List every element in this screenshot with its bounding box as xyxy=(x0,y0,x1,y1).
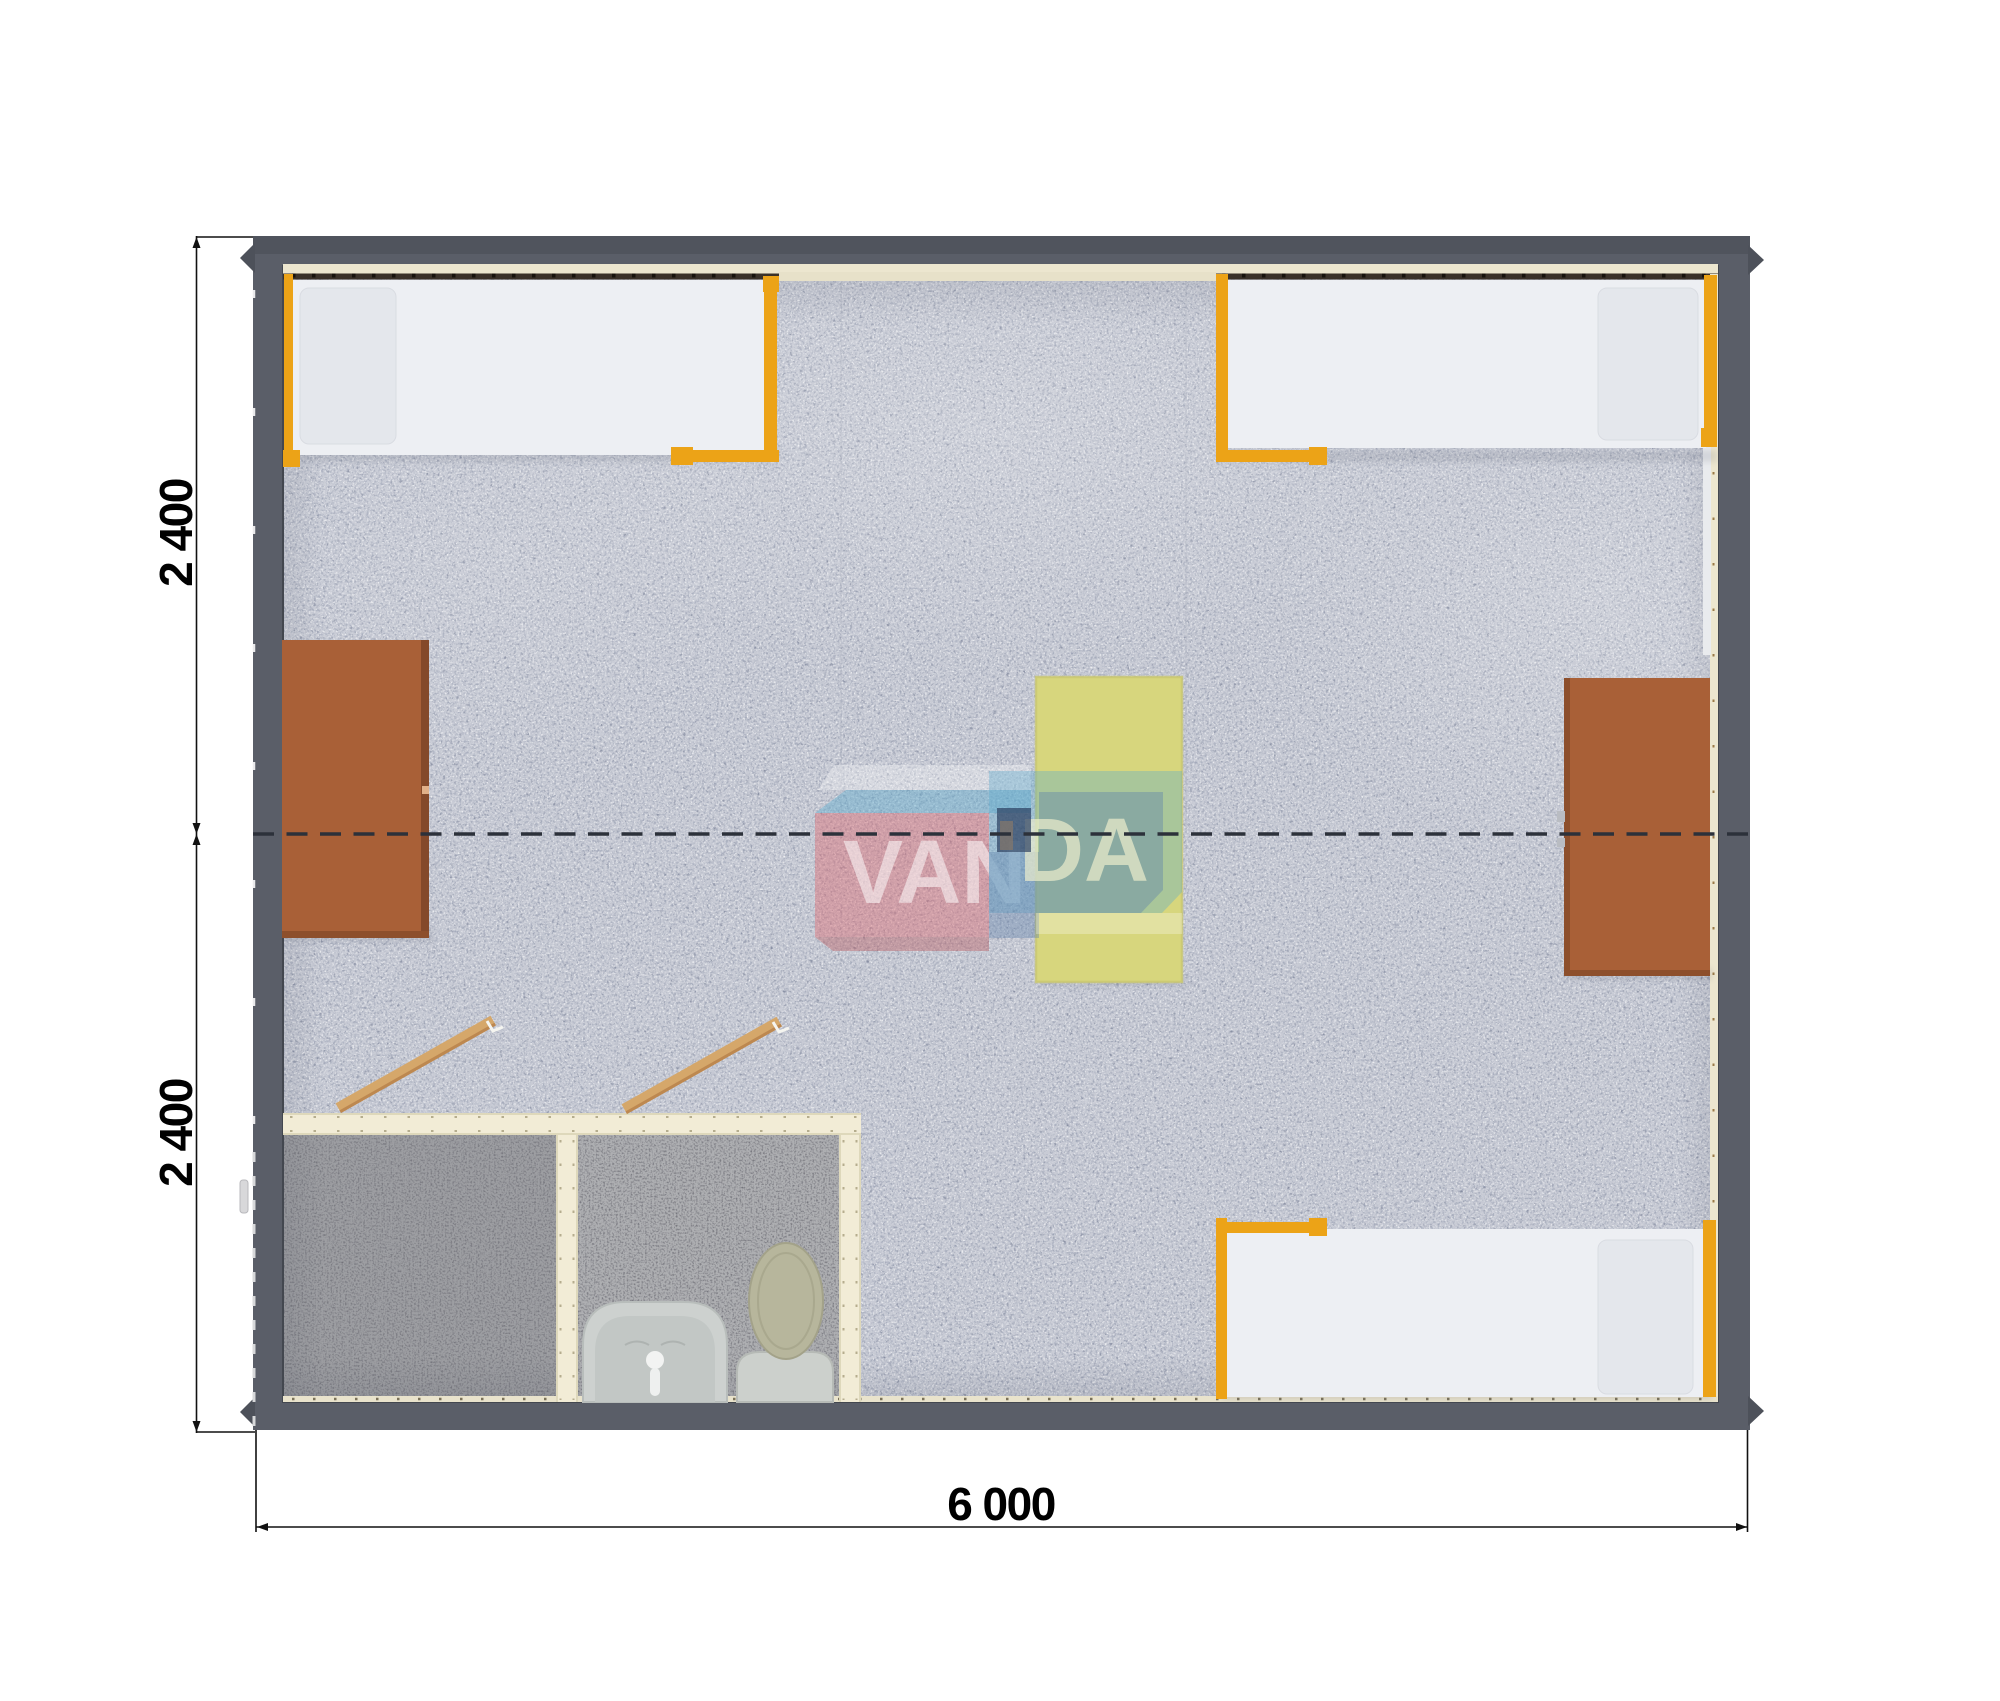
svg-text:2 400: 2 400 xyxy=(150,479,202,587)
svg-text:2 400: 2 400 xyxy=(150,1079,202,1187)
svg-text:6 000: 6 000 xyxy=(947,1478,1055,1530)
svg-text:DA: DA xyxy=(1019,801,1149,901)
